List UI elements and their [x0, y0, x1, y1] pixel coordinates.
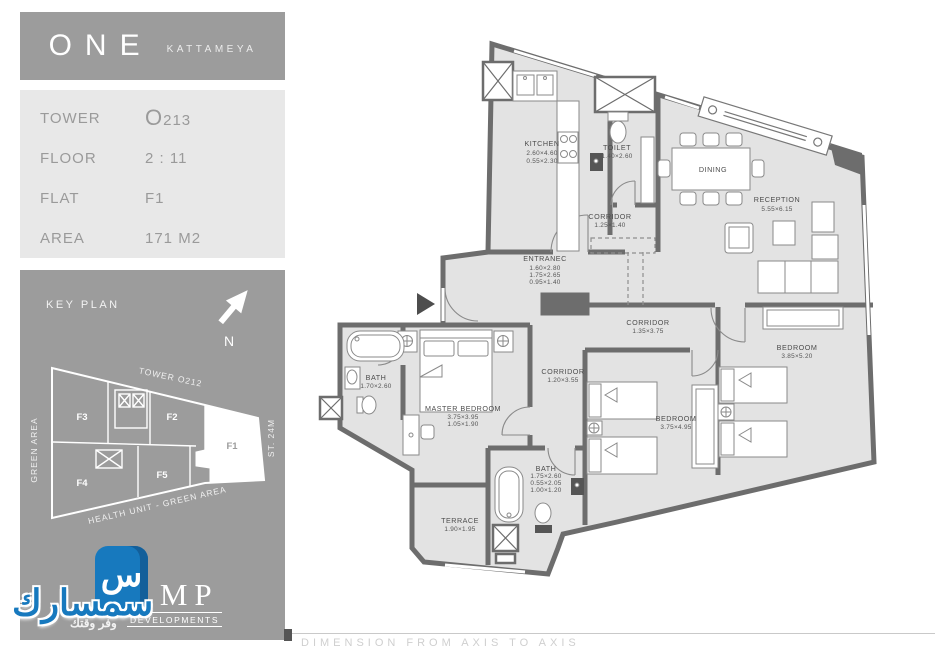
- floor-label: FLOOR: [20, 150, 145, 167]
- kitchen-dim-1: 2.60×4.60: [526, 150, 557, 157]
- flat-label-f2: F2: [166, 412, 177, 423]
- area-label: AREA: [20, 230, 145, 247]
- tower-label: TOWER: [20, 110, 145, 127]
- terrace-dim: 1.90×1.95: [444, 526, 475, 533]
- room-label-corridor-low: CORRIDOR: [541, 367, 584, 376]
- floor-value: 2 : 11: [145, 150, 187, 167]
- street-label: ST. 24M: [266, 419, 276, 457]
- bath2-dim-2: 0.55×2.05: [530, 480, 561, 487]
- bath2-dim-3: 1.00×1.20: [530, 487, 561, 494]
- corridor-top-dim: 1.25×1.40: [594, 222, 625, 229]
- room-label-bath2: BATH: [536, 464, 557, 473]
- key-plan-panel: KEY PLAN N: [20, 270, 285, 640]
- info-row-flat: FLAT F1: [20, 183, 285, 213]
- brand-title: ONE: [49, 29, 153, 63]
- key-plan-drawing: KEY PLAN N: [20, 270, 285, 640]
- flat-label-f4: F4: [76, 478, 88, 489]
- flat-label-f3: F3: [76, 412, 87, 423]
- bedroom-right-dim: 3.85×5.20: [781, 353, 812, 360]
- room-label-toilet: TOILET: [603, 143, 631, 152]
- tower-o212-label: TOWER O212: [138, 365, 203, 388]
- tower-value: O213: [145, 105, 191, 131]
- info-row-tower: TOWER O213: [20, 103, 285, 133]
- green-area-label: GREEN AREA: [29, 417, 39, 482]
- brand-band: ONE KATTAMEYA: [20, 12, 285, 80]
- master-dim-1: 3.75×3.95: [447, 414, 478, 421]
- entrance-dim-2: 1.75×2.65: [529, 272, 560, 279]
- north-arrow-icon: N: [213, 284, 255, 349]
- room-label-master-bedroom: MASTER BEDROOM: [425, 404, 501, 413]
- corridor-low-dim: 1.20×3.55: [547, 377, 578, 384]
- room-label-corridor-top: CORRIDOR: [588, 212, 631, 221]
- entrance-arrow-icon: [417, 293, 435, 315]
- flat-label-f1: F1: [226, 441, 238, 452]
- room-label-bath1: BATH: [366, 373, 387, 382]
- room-label-terrace: TERRACE: [441, 516, 479, 525]
- room-label-entrance: ENTRANEC: [523, 254, 567, 263]
- floor-plan-drawing: KITCHEN TOILET CORRIDOR DINING RECEPTION…: [295, 5, 935, 635]
- page: ONE KATTAMEYA TOWER O213 FLOOR 2 : 11 FL…: [0, 0, 940, 665]
- footer-rule: [286, 633, 935, 634]
- room-label-bedroom-mid: BEDROOM: [656, 414, 697, 423]
- key-plan-title: KEY PLAN: [46, 299, 120, 311]
- info-row-area: AREA 171 M2: [20, 223, 285, 253]
- entrance-dim-1: 1.60×2.80: [529, 265, 560, 272]
- room-label-dining: DINING: [699, 165, 727, 174]
- flat-label: FLAT: [20, 190, 145, 207]
- room-label-reception: RECEPTION: [754, 195, 800, 204]
- flat-label-f5: F5: [156, 470, 168, 481]
- entrance-dim-3: 0.95×1.40: [529, 279, 560, 286]
- flat-value: F1: [145, 190, 165, 207]
- room-label-kitchen: KITCHEN: [524, 139, 559, 148]
- footer-note: DIMENSION FROM AXIS TO AXIS: [301, 637, 580, 649]
- info-row-floor: FLOOR 2 : 11: [20, 143, 285, 173]
- north-label: N: [224, 333, 234, 349]
- corridor-mid-dim: 1.35×3.75: [632, 328, 663, 335]
- bath1-dim: 1.70×2.60: [360, 383, 391, 390]
- footer-square: [284, 629, 292, 641]
- brand-subtitle: KATTAMEYA: [167, 44, 257, 55]
- room-label-corridor-mid: CORRIDOR: [626, 318, 669, 327]
- kitchen-dim-2: 0.55×2.30: [526, 158, 557, 165]
- reception-dim: 5.55×6.15: [761, 206, 792, 213]
- master-dim-2: 1.05×1.90: [447, 421, 478, 428]
- bedroom-mid-dim: 3.75×4.95: [660, 424, 691, 431]
- toilet-dim: 1.40×2.60: [601, 153, 632, 160]
- bath2-dim-1: 1.75×2.60: [530, 473, 561, 480]
- unit-info-panel: TOWER O213 FLOOR 2 : 11 FLAT F1 AREA 171…: [20, 90, 285, 258]
- area-value: 171 M2: [145, 230, 201, 247]
- room-label-bedroom-right: BEDROOM: [777, 343, 818, 352]
